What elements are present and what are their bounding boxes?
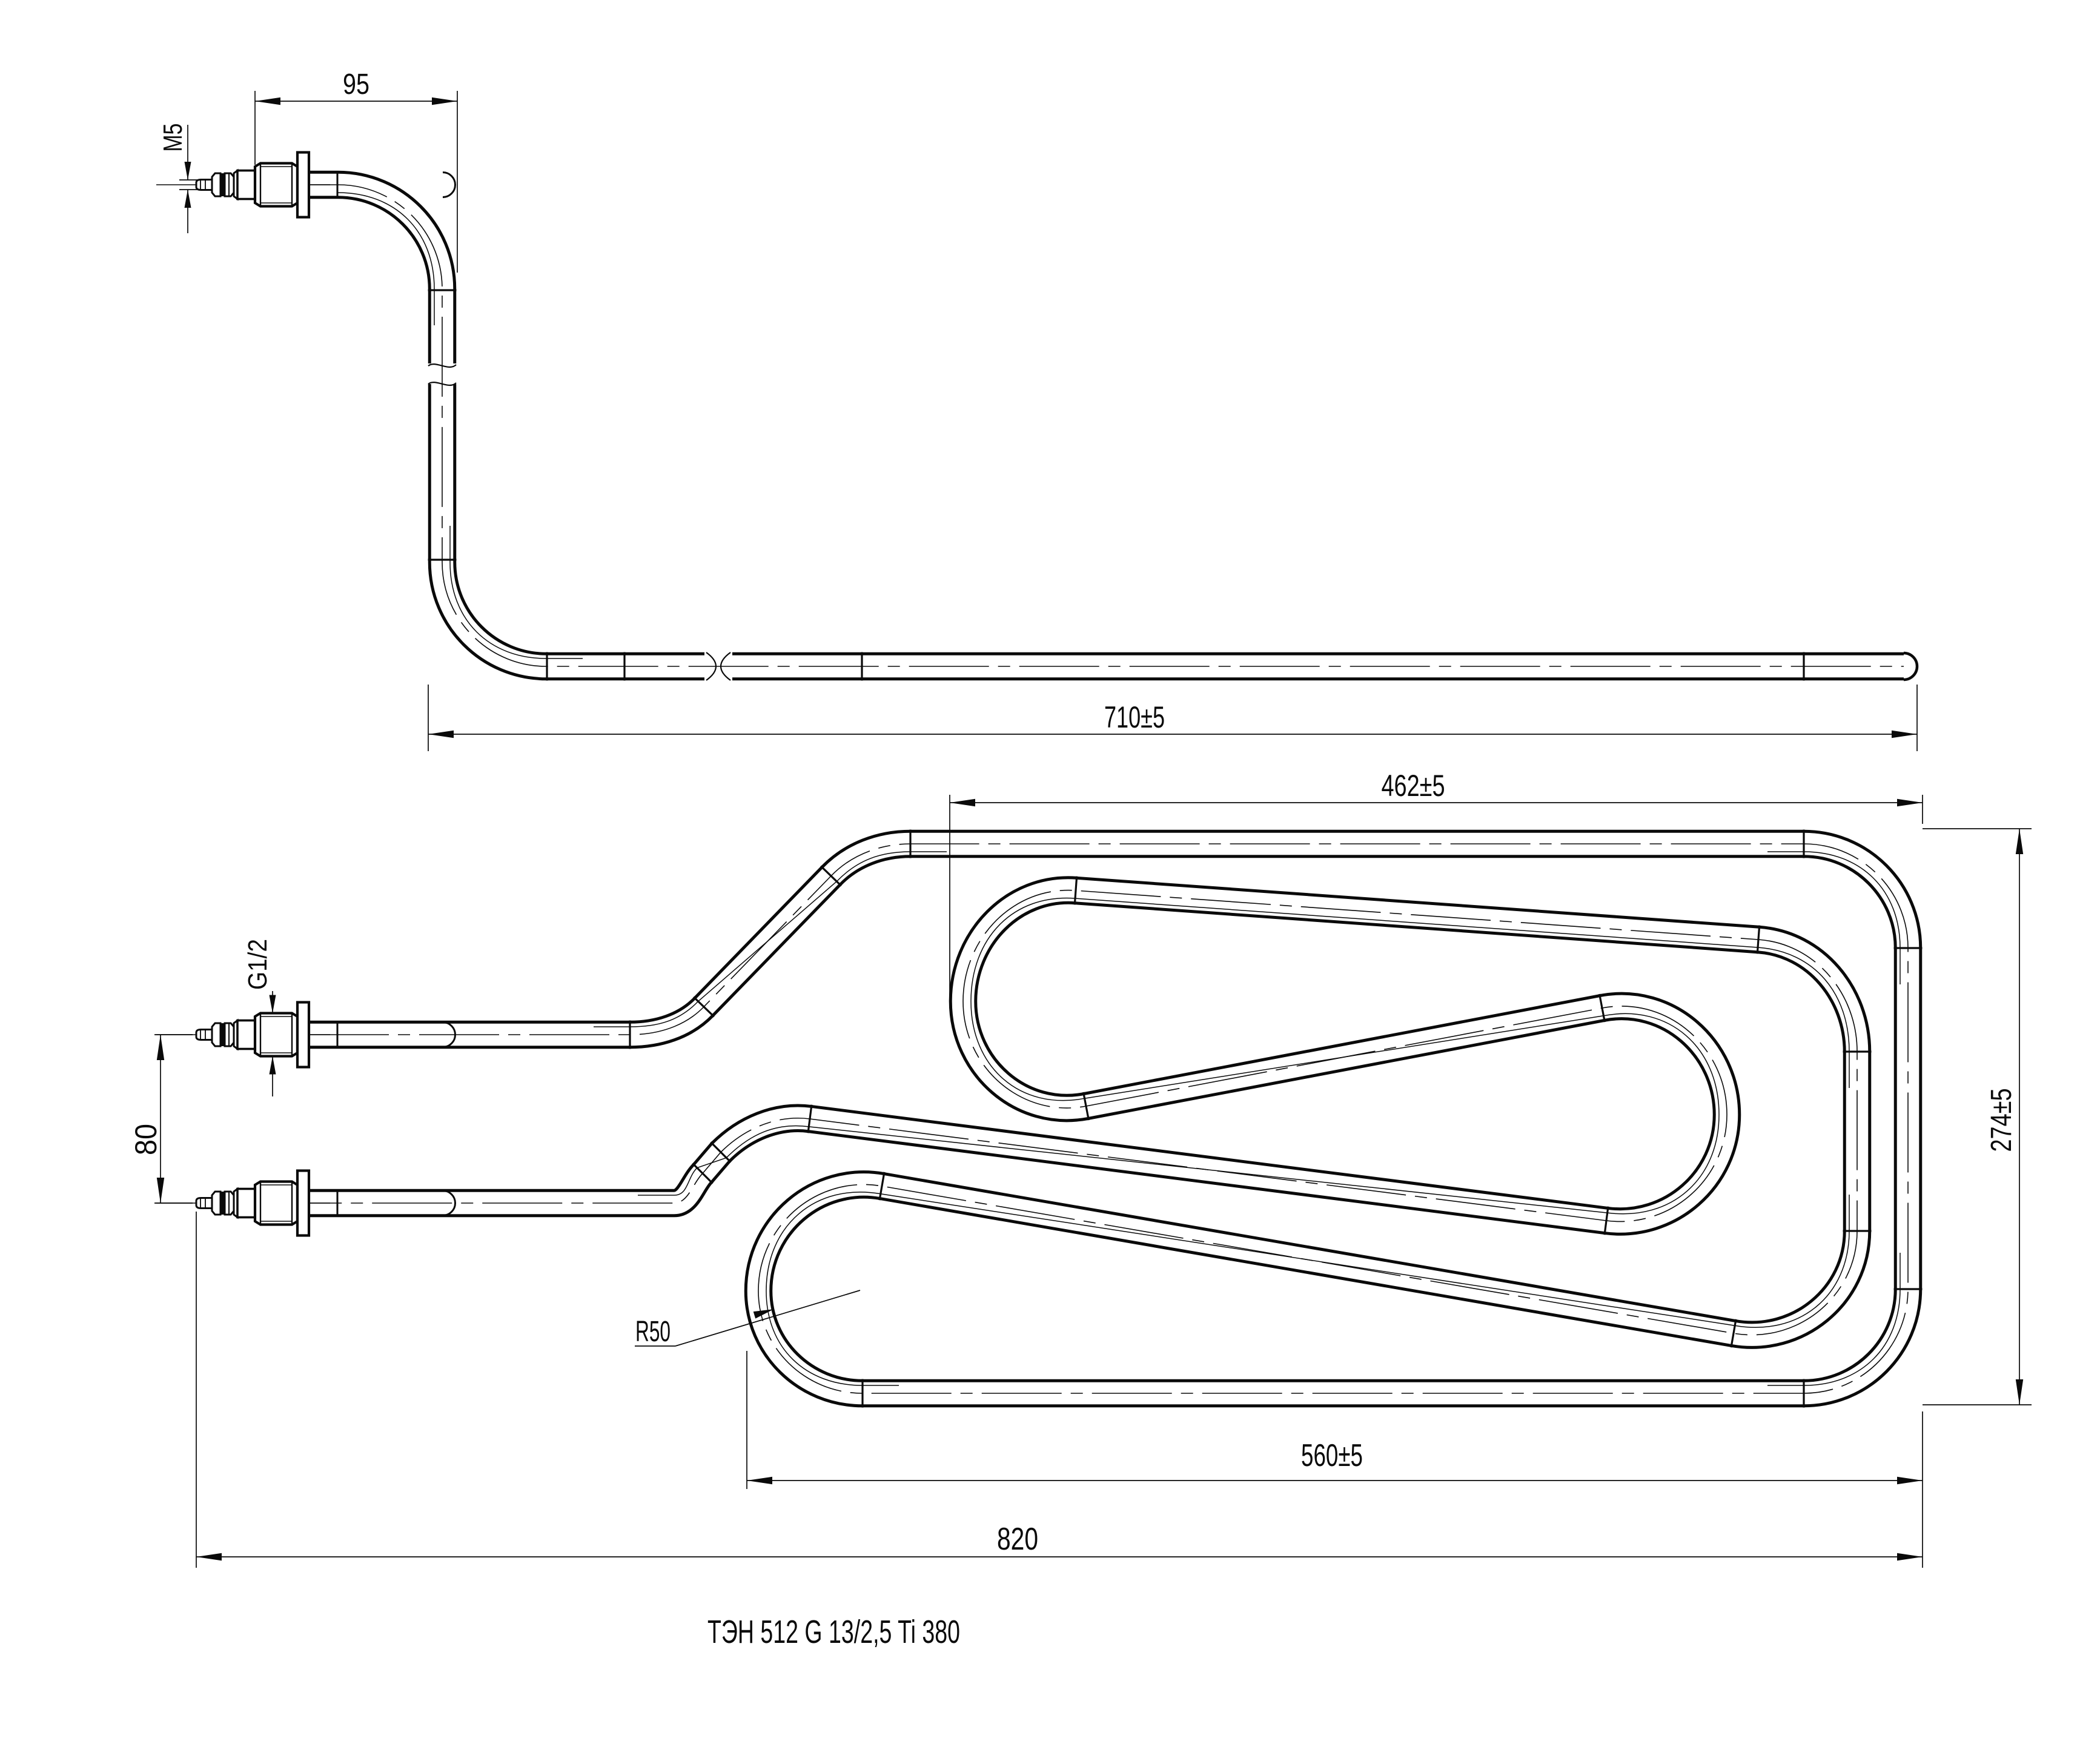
svg-text:R50: R50 xyxy=(635,1316,671,1348)
svg-text:274±5: 274±5 xyxy=(1986,1089,2018,1152)
svg-text:95: 95 xyxy=(343,68,369,101)
svg-text:ТЭН 512 G 13/2,5 Ti 380: ТЭН 512 G 13/2,5 Ti 380 xyxy=(707,1614,960,1650)
svg-text:560±5: 560±5 xyxy=(1301,1438,1363,1473)
svg-text:M5: M5 xyxy=(158,124,188,152)
svg-text:462±5: 462±5 xyxy=(1382,769,1445,803)
svg-text:710±5: 710±5 xyxy=(1104,700,1165,734)
svg-text:80: 80 xyxy=(129,1124,163,1155)
svg-text:820: 820 xyxy=(997,1522,1038,1557)
svg-text:G1/2: G1/2 xyxy=(243,939,273,990)
